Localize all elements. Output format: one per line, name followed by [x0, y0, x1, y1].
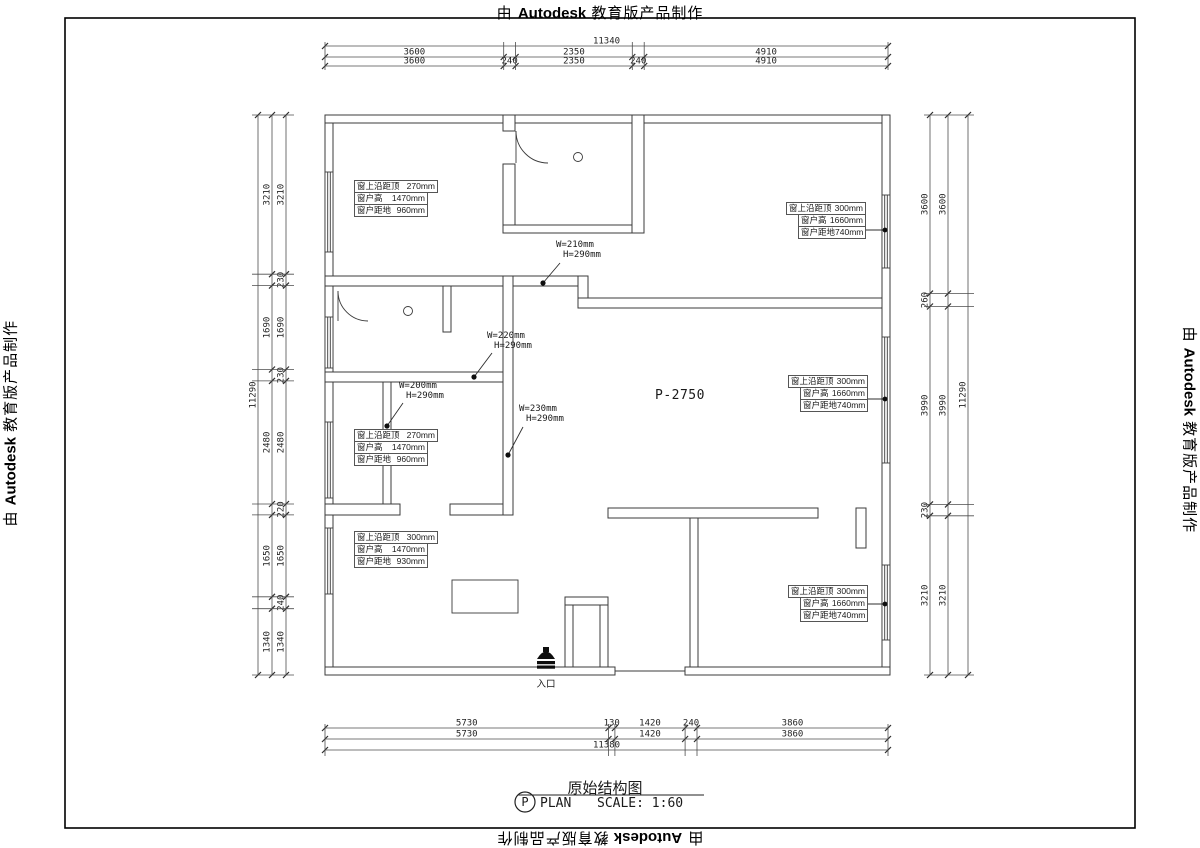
wall	[565, 597, 608, 605]
dim-label: 4910	[755, 57, 777, 67]
drawing-title: 原始结构图	[540, 777, 670, 798]
dim-label: 3990	[921, 395, 931, 417]
dim-label: 11290	[959, 381, 969, 408]
window-symbol	[325, 422, 333, 498]
wall	[608, 508, 818, 518]
dim-label: 3990	[939, 395, 949, 417]
wall	[503, 115, 515, 131]
annotation-value: 270mm	[407, 430, 435, 441]
wall	[503, 164, 515, 233]
annotation-key: 窗户高	[803, 598, 829, 609]
annotation-key: 窗户高	[803, 388, 829, 399]
dim-label: 1340	[263, 631, 273, 653]
annotation-value: 740mm	[835, 227, 863, 238]
wall	[443, 286, 451, 332]
dim-label: 11380	[593, 741, 620, 751]
dim-label: 1650	[263, 545, 273, 567]
dim-label: 130	[604, 719, 620, 729]
dim-label: 2480	[277, 432, 287, 454]
dim-label: 3860	[782, 730, 804, 740]
annotation-value: 930mm	[397, 556, 425, 567]
annotation-key: 窗上沿距顶	[357, 430, 400, 441]
annotation-value: 270mm	[407, 181, 435, 192]
annotation-value: 300mm	[835, 203, 863, 214]
annotation-value: 1660mm	[832, 388, 865, 399]
wall	[325, 276, 588, 286]
annotation-value: 300mm	[407, 532, 435, 543]
dim-label: 3600	[404, 57, 426, 67]
annotation-key: 窗户距地	[801, 227, 835, 238]
window-marker-dot	[883, 228, 888, 233]
annotation-key: 窗上沿距顶	[357, 532, 400, 543]
door-swing-arc	[338, 291, 368, 321]
dim-label: 3600	[939, 193, 949, 215]
annotation-key: 窗户距地	[357, 454, 391, 465]
dim-label: 1690	[263, 317, 273, 339]
dim-label: 2350	[563, 57, 585, 67]
dim-label: 3210	[939, 585, 949, 607]
annotation-key: 窗上沿距顶	[789, 203, 832, 214]
annotation-key: 窗户高	[357, 544, 383, 555]
wall	[565, 597, 573, 667]
beam-size-label: W=210mmH=290mm	[556, 240, 601, 260]
annotation-key: 窗户高	[801, 215, 827, 226]
beam-size-label: W=200mmH=290mm	[399, 381, 444, 401]
dim-label: 1650	[277, 545, 287, 567]
wall	[325, 504, 400, 515]
annotation-key: 窗户距地	[803, 400, 837, 411]
watermark-bottom: 由 Autodesk 教育版产品制作	[0, 828, 1200, 848]
window-marker-dot	[883, 602, 888, 607]
dim-label: 3210	[263, 184, 273, 206]
door-swing-arc	[516, 131, 548, 163]
dim-label: 1340	[277, 631, 287, 653]
window-symbol	[325, 317, 333, 368]
wall	[685, 667, 890, 675]
dim-label: 11340	[593, 37, 620, 47]
beam-marker-dot	[505, 452, 510, 457]
annotation-key: 窗户距地	[803, 610, 837, 621]
annotation-value: 1660mm	[832, 598, 865, 609]
wall	[325, 667, 615, 675]
window-symbol	[325, 528, 333, 594]
dim-label: 11290	[249, 381, 259, 408]
annotation-value: 960mm	[397, 454, 425, 465]
window-annotation-box: 窗上沿距顶300mm 窗户高1470mm 窗户距地930mm	[354, 531, 438, 568]
beam-marker-dot	[471, 374, 476, 379]
wall	[690, 518, 698, 667]
annotation-key: 窗户高	[357, 193, 383, 204]
annotation-value: 740mm	[837, 610, 865, 621]
annotation-value: 960mm	[397, 205, 425, 216]
wall	[578, 298, 882, 308]
dim-label: 2480	[263, 432, 273, 454]
dim-label: 1420	[639, 730, 661, 740]
watermark-right: 由 Autodesk 教育版产品制作	[1180, 327, 1200, 527]
plan-label: PLAN	[540, 796, 571, 811]
beam-size-label: W=230mmH=290mm	[519, 404, 564, 424]
annotation-key: 窗上沿距顶	[357, 181, 400, 192]
dim-label: 5730	[456, 730, 478, 740]
watermark-top: 由 Autodesk 教育版产品制作	[0, 2, 1200, 23]
entrance-label: 入口	[529, 676, 563, 690]
dim-label: 3210	[921, 585, 931, 607]
dim-label: 1420	[639, 719, 661, 729]
ceiling-fixture-icon	[404, 307, 413, 316]
cad-sheet: 1134036002350491036002402350240491057301…	[0, 0, 1200, 848]
wall	[503, 276, 513, 515]
annotation-value: 1470mm	[392, 442, 425, 453]
ceiling-fixture-icon	[574, 153, 583, 162]
wall	[503, 225, 642, 233]
wall	[856, 508, 866, 548]
wall	[632, 115, 644, 233]
room-height-label: P-2750	[655, 388, 705, 403]
wall	[325, 115, 890, 123]
beam-marker-dot	[540, 280, 545, 285]
sheet-border	[65, 18, 1135, 828]
annotation-value: 1660mm	[830, 215, 863, 226]
dim-label: 260	[921, 292, 931, 308]
annotation-key: 窗户距地	[357, 205, 391, 216]
wall	[600, 597, 608, 667]
annotation-value: 1470mm	[392, 544, 425, 555]
dim-label: 5730	[456, 719, 478, 729]
annotation-key: 窗户距地	[357, 556, 391, 567]
window-annotation-box: 窗上沿距顶300mm 窗户高1660mm 窗户距地740mm	[788, 585, 868, 622]
window-annotation-box: 窗上沿距顶300mm 窗户高1660mm 窗户距地740mm	[786, 202, 866, 239]
scale-label: SCALE: 1:60	[597, 796, 683, 811]
window-symbol	[325, 172, 333, 252]
beam-size-label: W=220mmH=290mm	[487, 331, 532, 351]
dim-label: 3860	[782, 719, 804, 729]
window-annotation-box: 窗上沿距顶270mm 窗户高1470mm 窗户距地960mm	[354, 429, 438, 466]
annotation-key: 窗上沿距顶	[791, 376, 834, 387]
dim-label: 3600	[921, 193, 931, 215]
window-marker-dot	[883, 397, 888, 402]
annotation-value: 300mm	[837, 586, 865, 597]
entrance-icon	[537, 647, 555, 669]
plan-badge-letter: P	[515, 795, 535, 809]
window-annotation-box: 窗上沿距顶270mm 窗户高1470mm 窗户距地960mm	[354, 180, 438, 217]
window-annotation-box: 窗上沿距顶300mm 窗户高1660mm 窗户距地740mm	[788, 375, 868, 412]
annotation-value: 1470mm	[392, 193, 425, 204]
annotation-key: 窗户高	[357, 442, 383, 453]
annotation-value: 300mm	[837, 376, 865, 387]
watermark-left: 由 Autodesk 教育版产品制作	[0, 327, 21, 527]
shaft-box	[452, 580, 518, 613]
dim-label: 3210	[277, 184, 287, 206]
beam-marker-dot	[384, 423, 389, 428]
annotation-value: 740mm	[837, 400, 865, 411]
dim-label: 1690	[277, 317, 287, 339]
floor-plan-drawing: 1134036002350491036002402350240491057301…	[0, 0, 1200, 848]
annotation-key: 窗上沿距顶	[791, 586, 834, 597]
